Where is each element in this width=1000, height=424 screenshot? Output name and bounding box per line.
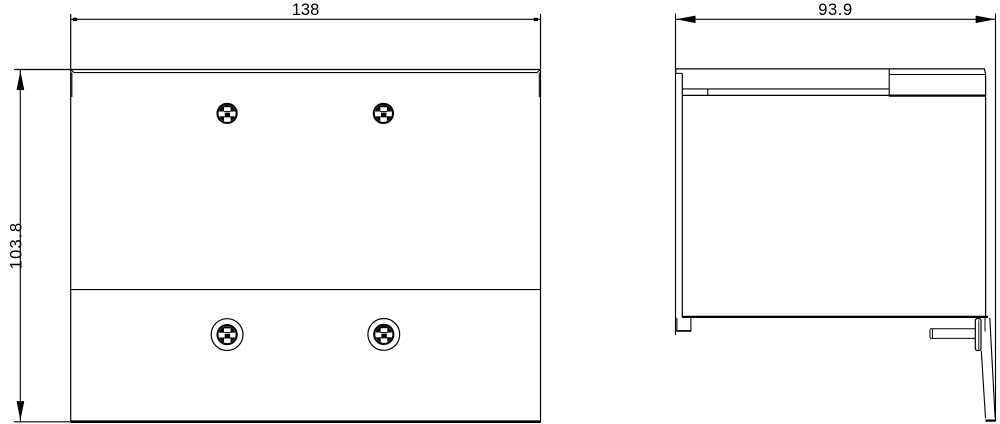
- svg-text:103.8: 103.8: [8, 222, 26, 270]
- svg-text:93.9: 93.9: [818, 1, 853, 19]
- svg-text:138: 138: [292, 1, 320, 19]
